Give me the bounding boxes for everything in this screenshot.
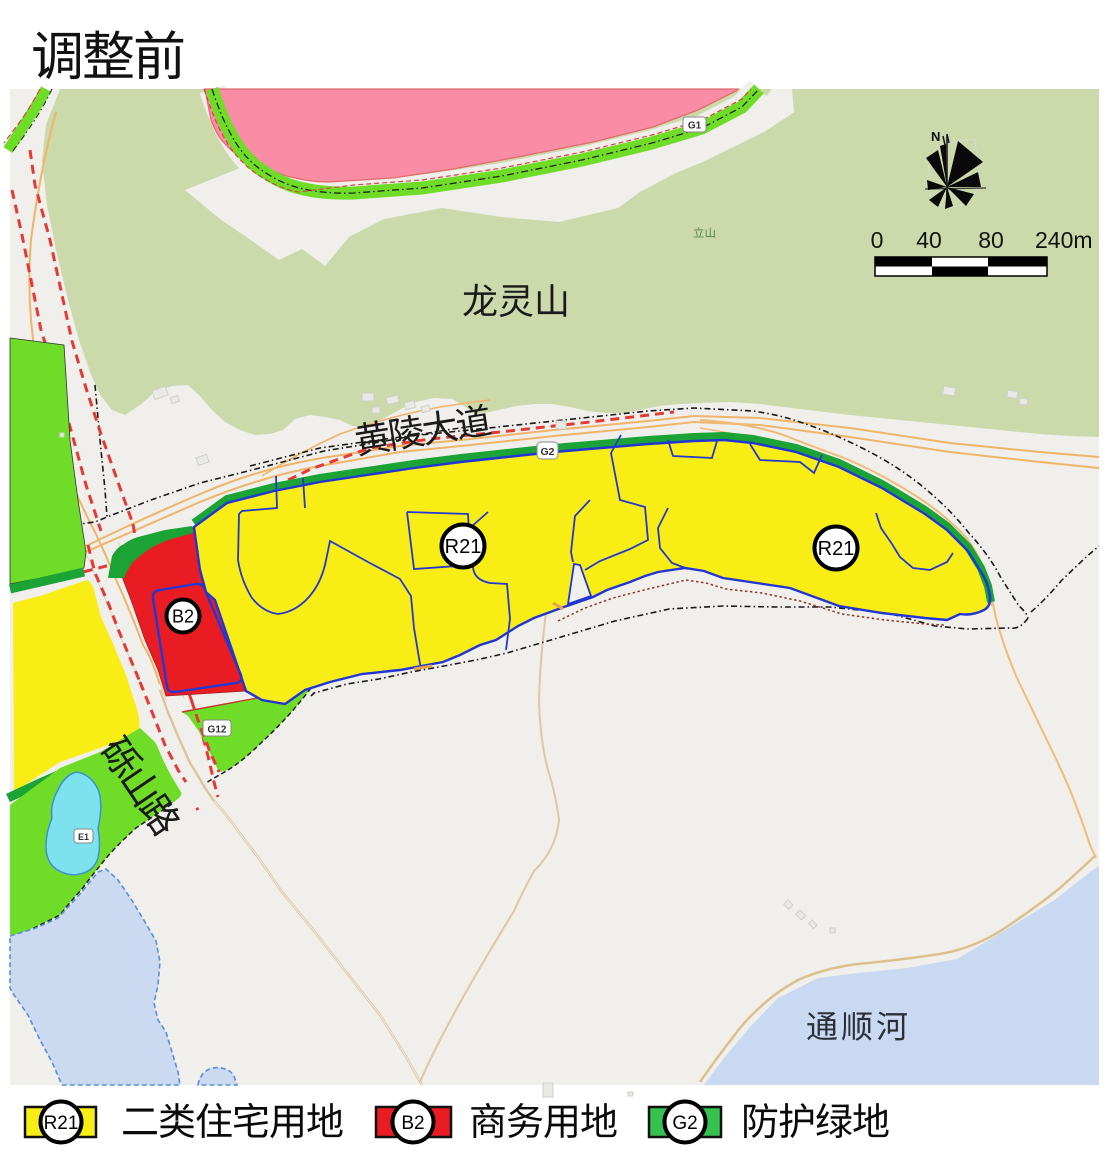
svg-text:G2: G2 bbox=[540, 446, 554, 458]
svg-text:G12: G12 bbox=[208, 725, 227, 736]
svg-text:R21: R21 bbox=[445, 536, 482, 558]
svg-text:N: N bbox=[931, 129, 940, 144]
svg-text:B2: B2 bbox=[401, 1113, 424, 1134]
svg-text:B2: B2 bbox=[172, 607, 194, 627]
svg-text:80: 80 bbox=[978, 227, 1004, 253]
svg-text:G2: G2 bbox=[672, 1113, 697, 1134]
svg-text:R21: R21 bbox=[818, 538, 855, 560]
svg-text:40: 40 bbox=[916, 227, 942, 253]
svg-text:240m: 240m bbox=[1035, 227, 1093, 253]
svg-text:R21: R21 bbox=[44, 1113, 79, 1134]
svg-text:G1: G1 bbox=[688, 121, 702, 132]
svg-text:E1: E1 bbox=[78, 832, 89, 842]
svg-text:0: 0 bbox=[871, 227, 884, 253]
